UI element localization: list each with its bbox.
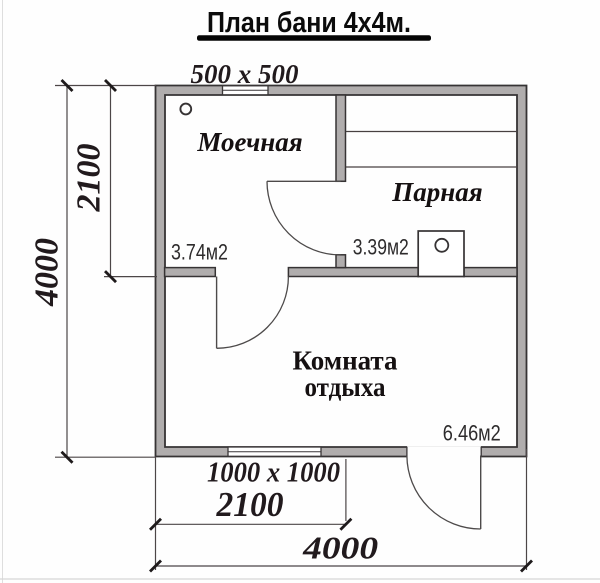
svg-text:Парная: Парная — [391, 177, 482, 207]
svg-text:4000: 4000 — [28, 238, 65, 307]
svg-text:1000 x 1000: 1000 x 1000 — [207, 457, 340, 489]
svg-text:2100: 2100 — [70, 144, 107, 213]
svg-text:2100: 2100 — [216, 486, 284, 524]
svg-text:Моечная: Моечная — [196, 127, 302, 157]
svg-text:500 x 500: 500 x 500 — [191, 59, 300, 89]
svg-text:3.74м2: 3.74м2 — [171, 240, 228, 265]
svg-text:4000: 4000 — [302, 530, 378, 566]
svg-text:Комната: Комната — [292, 346, 398, 376]
svg-text:6.46м2: 6.46м2 — [443, 421, 501, 446]
svg-text:План бани 4х4м.: План бани 4х4м. — [207, 7, 411, 39]
svg-text:отдыха: отдыха — [305, 372, 386, 402]
svg-text:3.39м2: 3.39м2 — [353, 235, 409, 260]
